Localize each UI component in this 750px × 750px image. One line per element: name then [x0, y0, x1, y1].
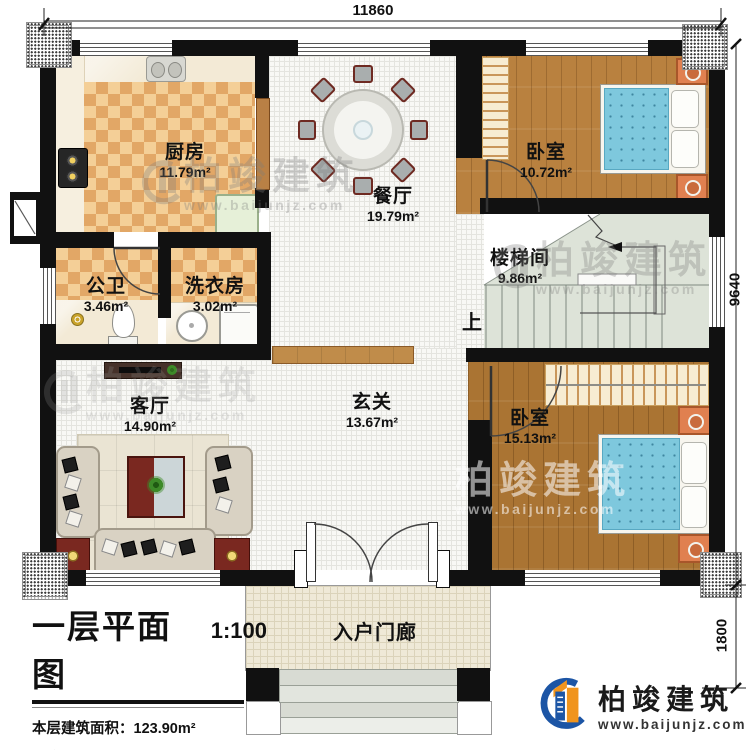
stair-lower-flight	[484, 285, 709, 348]
floor-area-label: 本层建筑面积：	[32, 721, 134, 737]
room-area: 19.79m²	[367, 208, 419, 224]
wall-kitchen-dining-upper	[255, 56, 269, 98]
corner-column-bl	[22, 552, 68, 600]
wardrobe-bedroom2	[545, 364, 709, 406]
room-label-stairwell: 楼梯间 9.86m²	[460, 248, 580, 286]
pillow	[681, 486, 707, 528]
stairs-up-label: 上	[462, 306, 482, 335]
porch-step	[246, 717, 492, 734]
pillow	[681, 442, 707, 484]
room-area: 3.02m²	[193, 298, 237, 314]
room-name: 卧室	[526, 142, 566, 164]
brand-logo: 柏竣建筑 www.baijunjz.com	[538, 676, 747, 741]
entrance-door-leaf	[306, 522, 316, 582]
room-label-dining: 餐厅 19.79m²	[333, 186, 453, 224]
corner-column-br	[700, 552, 742, 598]
title-rule-thin	[32, 707, 244, 708]
tv-console	[104, 362, 182, 379]
wall-bedroom1-bottom	[480, 198, 725, 214]
room-name: 玄关	[352, 392, 392, 414]
corner-column-tr	[682, 24, 728, 70]
window-stairwell-right	[709, 237, 725, 327]
room-name: 卧室	[510, 408, 550, 430]
brand-website: www.baijunjz.com	[598, 718, 747, 732]
sink-basin	[151, 62, 165, 78]
mattress	[602, 438, 680, 530]
room-label-living: 客厅 14.90m²	[90, 396, 210, 434]
plan-title: 一层平面图	[32, 600, 199, 696]
porch-pillar-right	[457, 668, 490, 701]
brand-logo-icon	[538, 676, 590, 741]
laundry-sink	[176, 310, 208, 342]
room-area: 15.13m²	[504, 430, 556, 446]
pillow	[671, 90, 699, 128]
room-name: 入户门廊	[333, 622, 417, 645]
mattress	[604, 88, 669, 170]
corner-column-tl	[26, 22, 72, 68]
floor-plan: 柏竣建筑www.baijunjz.com 柏竣建筑www.baijunjz.co…	[0, 0, 750, 750]
room-area: 11.79m²	[159, 164, 210, 180]
table-plant	[147, 476, 165, 494]
burner	[66, 170, 79, 183]
room-label-foyer: 玄关 13.67m²	[312, 392, 432, 430]
floor-area-line: 本层建筑面积：123.90m²	[32, 717, 267, 738]
burner	[66, 154, 79, 167]
console-plant	[167, 365, 177, 375]
window-living-bottom	[86, 570, 220, 586]
wall-kitchen-bottom-b	[158, 232, 271, 248]
wall-bedroom1-left	[456, 56, 482, 158]
porch-step	[279, 685, 459, 703]
kitchen-counter	[56, 56, 85, 232]
room-label-kitchen: 厨房 11.79m²	[125, 142, 245, 180]
entrance-door-frame	[436, 550, 450, 588]
window-bedroom2-bottom	[525, 570, 660, 586]
niche-inner	[14, 200, 36, 236]
porch-base-right	[457, 701, 492, 735]
floor-area-value: 123.90m²	[134, 721, 196, 737]
nightstand	[676, 174, 708, 200]
room-label-porch: 入户门廊	[315, 622, 435, 645]
sink-basin	[168, 62, 182, 78]
room-name: 楼梯间	[490, 248, 550, 270]
wall-kitchen-bottom-a	[40, 232, 114, 248]
window-kitchen-top	[80, 40, 172, 56]
kitchen-sink	[146, 56, 186, 82]
room-label-bedroom1: 卧室 10.72m²	[486, 142, 606, 180]
room-area: 10.72m²	[520, 164, 572, 180]
nightstand	[678, 406, 711, 435]
dimension-porch: 1800	[714, 606, 731, 666]
room-name: 客厅	[130, 396, 170, 418]
foyer-cabinet	[272, 346, 414, 364]
room-label-bedroom2: 卧室 15.13m²	[470, 408, 590, 446]
window-bedroom1-top	[526, 40, 648, 56]
dimension-top: 11860	[338, 2, 408, 19]
room-area: 14.90m²	[124, 418, 176, 434]
room-area: 3.46m²	[84, 298, 128, 314]
room-area: 13.67m²	[346, 414, 398, 430]
kitchen-sliding-door	[256, 98, 270, 190]
fridge	[215, 194, 259, 236]
wall-bedroom2-top	[466, 348, 725, 362]
room-label-laundry: 洗衣房 3.02m²	[155, 276, 275, 314]
wall-kitchen-dining-lower	[255, 188, 269, 208]
room-name: 厨房	[165, 142, 205, 164]
title-block: 一层平面图 1:100 本层建筑面积：123.90m² 本栋建筑面积：247.8…	[32, 600, 267, 750]
tv	[119, 367, 161, 373]
room-name: 公卫	[86, 276, 126, 298]
sink-drain	[189, 323, 194, 328]
floor-drain	[71, 313, 84, 326]
room-area: 9.86m²	[498, 270, 542, 286]
stove	[58, 148, 88, 188]
wardrobe-rod	[546, 384, 706, 386]
plan-scale: 1:100	[211, 618, 267, 644]
entrance-door-leaf	[428, 522, 438, 582]
window-dining-top	[298, 40, 430, 56]
room-name: 洗衣房	[185, 276, 245, 298]
room-name: 餐厅	[373, 186, 413, 208]
title-rule	[32, 700, 244, 704]
dimension-right: 9640	[727, 260, 744, 320]
pillow	[671, 130, 699, 168]
side-table	[214, 538, 250, 574]
brand-name: 柏竣建筑	[598, 686, 747, 714]
room-label-bathroom: 公卫 3.46m²	[46, 276, 166, 314]
wall-bath-bottom	[40, 344, 271, 360]
coffee-table	[127, 456, 185, 518]
